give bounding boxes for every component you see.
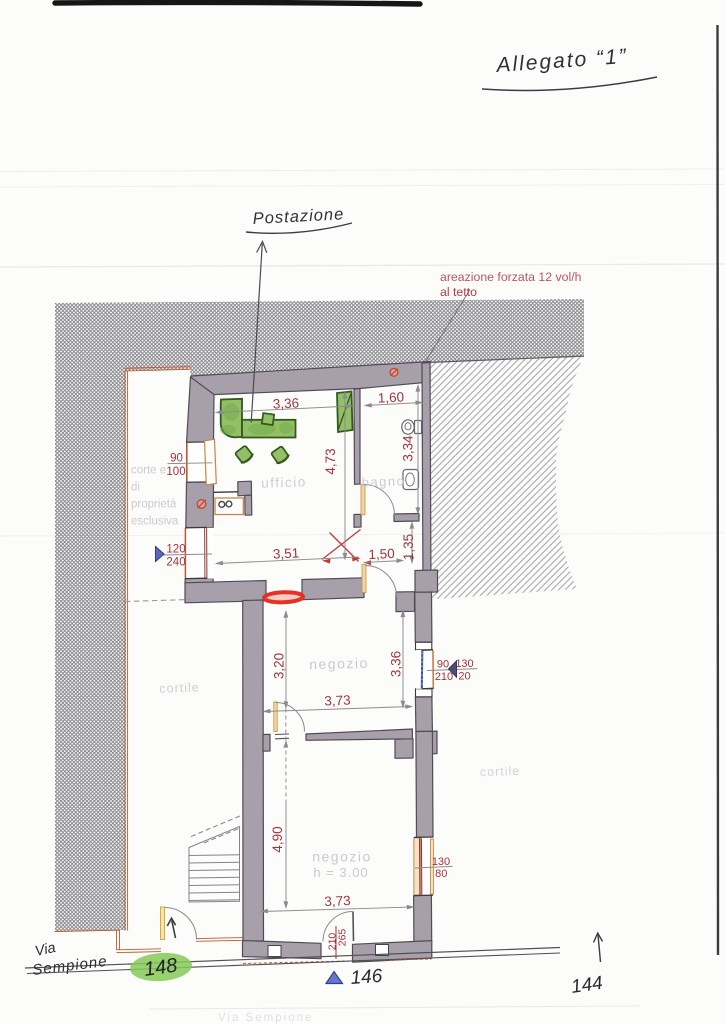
svg-text:240: 240 <box>166 557 185 569</box>
svg-text:bagno: bagno <box>361 473 405 490</box>
svg-text:3,20: 3,20 <box>272 653 287 679</box>
svg-text:1,60: 1,60 <box>378 389 405 405</box>
svg-text:di: di <box>131 482 140 494</box>
svg-text:146: 146 <box>350 966 384 989</box>
svg-text:areazione forzata 12 vol/h: areazione forzata 12 vol/h <box>440 270 582 284</box>
svg-text:130: 130 <box>432 856 450 868</box>
svg-text:h = 3.00: h = 3.00 <box>313 865 368 880</box>
svg-text:1,35: 1,35 <box>401 534 416 560</box>
svg-text:1,50: 1,50 <box>368 546 395 562</box>
svg-text:negozio: negozio <box>312 849 372 865</box>
svg-text:4,73: 4,73 <box>323 448 338 474</box>
svg-text:100: 100 <box>166 466 185 478</box>
svg-text:3,73: 3,73 <box>324 693 351 709</box>
svg-text:120: 120 <box>166 544 185 556</box>
svg-text:3,34: 3,34 <box>400 435 415 462</box>
svg-text:130: 130 <box>455 658 473 670</box>
svg-text:3,73: 3,73 <box>324 893 351 909</box>
svg-text:4,90: 4,90 <box>270 826 285 852</box>
svg-text:148: 148 <box>143 955 179 981</box>
svg-text:cortile: cortile <box>480 764 521 779</box>
svg-text:90: 90 <box>437 659 449 671</box>
svg-text:proprietà: proprietà <box>131 499 177 511</box>
svg-text:210: 210 <box>435 671 453 683</box>
svg-text:3,36: 3,36 <box>273 395 300 411</box>
svg-text:ufficio: ufficio <box>261 474 307 491</box>
svg-text:3,51: 3,51 <box>273 545 300 561</box>
svg-text:265: 265 <box>337 929 349 947</box>
svg-text:3,36: 3,36 <box>389 651 404 677</box>
svg-text:negozio: negozio <box>309 655 369 673</box>
svg-text:cortile: cortile <box>159 680 200 695</box>
svg-text:144: 144 <box>570 973 604 998</box>
svg-text:90: 90 <box>170 453 183 465</box>
svg-text:80: 80 <box>435 868 447 880</box>
svg-text:Via Sempione: Via Sempione <box>218 1012 313 1024</box>
svg-text:esclusiva: esclusiva <box>131 516 179 528</box>
svg-text:al tetto: al tetto <box>440 285 477 299</box>
svg-text:corte e: corte e <box>131 465 166 477</box>
svg-text:20: 20 <box>458 671 470 683</box>
